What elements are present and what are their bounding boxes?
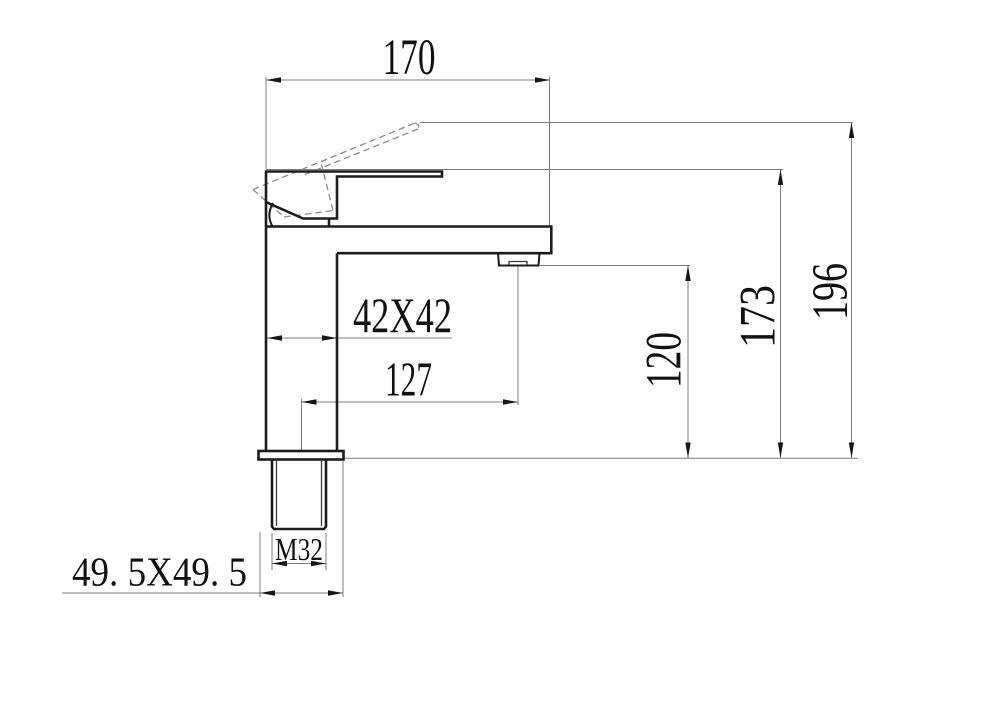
arrow-spout-offset-left <box>302 399 317 404</box>
base-flange <box>259 451 344 460</box>
arrow-spout-height-up <box>685 266 690 282</box>
dim-label-top-width: 170 <box>383 30 436 86</box>
faucet-technical-drawing: 170 42X42 127 M32 49. 5X49. 5 120 173 19… <box>0 0 1000 706</box>
arrow-top-width-right <box>535 77 550 82</box>
dim-label-body-section: 42X42 <box>353 287 452 343</box>
aerator-insert <box>509 262 527 266</box>
arrow-body-section-left <box>267 335 282 340</box>
dashed-lever-top-edge <box>253 123 415 190</box>
dim-label-overall-height: 196 <box>803 263 859 320</box>
arrow-top-width-left <box>266 77 281 82</box>
arrow-spout-offset-right <box>503 399 518 404</box>
arrow-body-height-down <box>778 443 783 459</box>
drawing-sheet: 170 42X42 127 M32 49. 5X49. 5 120 173 19… <box>0 0 1000 706</box>
arrow-overall-height-down <box>849 443 854 459</box>
aerator-outlet <box>498 253 540 265</box>
dim-label-spout-offset: 127 <box>385 352 432 407</box>
arrow-base-right <box>328 590 343 595</box>
arrow-overall-height-up <box>849 123 854 139</box>
handle-lever-and-base <box>266 172 442 219</box>
dim-label-body-height: 173 <box>731 285 787 348</box>
dashed-lever-tip <box>415 123 419 129</box>
faucet-outline <box>259 172 552 530</box>
arrow-spout-height-down <box>685 443 690 459</box>
dim-label-thread: M32 <box>275 531 323 567</box>
dim-label-spout-height: 120 <box>637 332 693 388</box>
arrow-body-height-up <box>778 170 783 186</box>
arrow-base-left <box>260 590 275 595</box>
dim-label-base-section: 49. 5X49. 5 <box>72 549 247 595</box>
spout-body <box>266 227 551 254</box>
dimension-labels: 170 42X42 127 M32 49. 5X49. 5 120 173 19… <box>72 30 859 595</box>
arrow-body-section-right <box>322 335 337 340</box>
threaded-shank <box>272 460 326 530</box>
